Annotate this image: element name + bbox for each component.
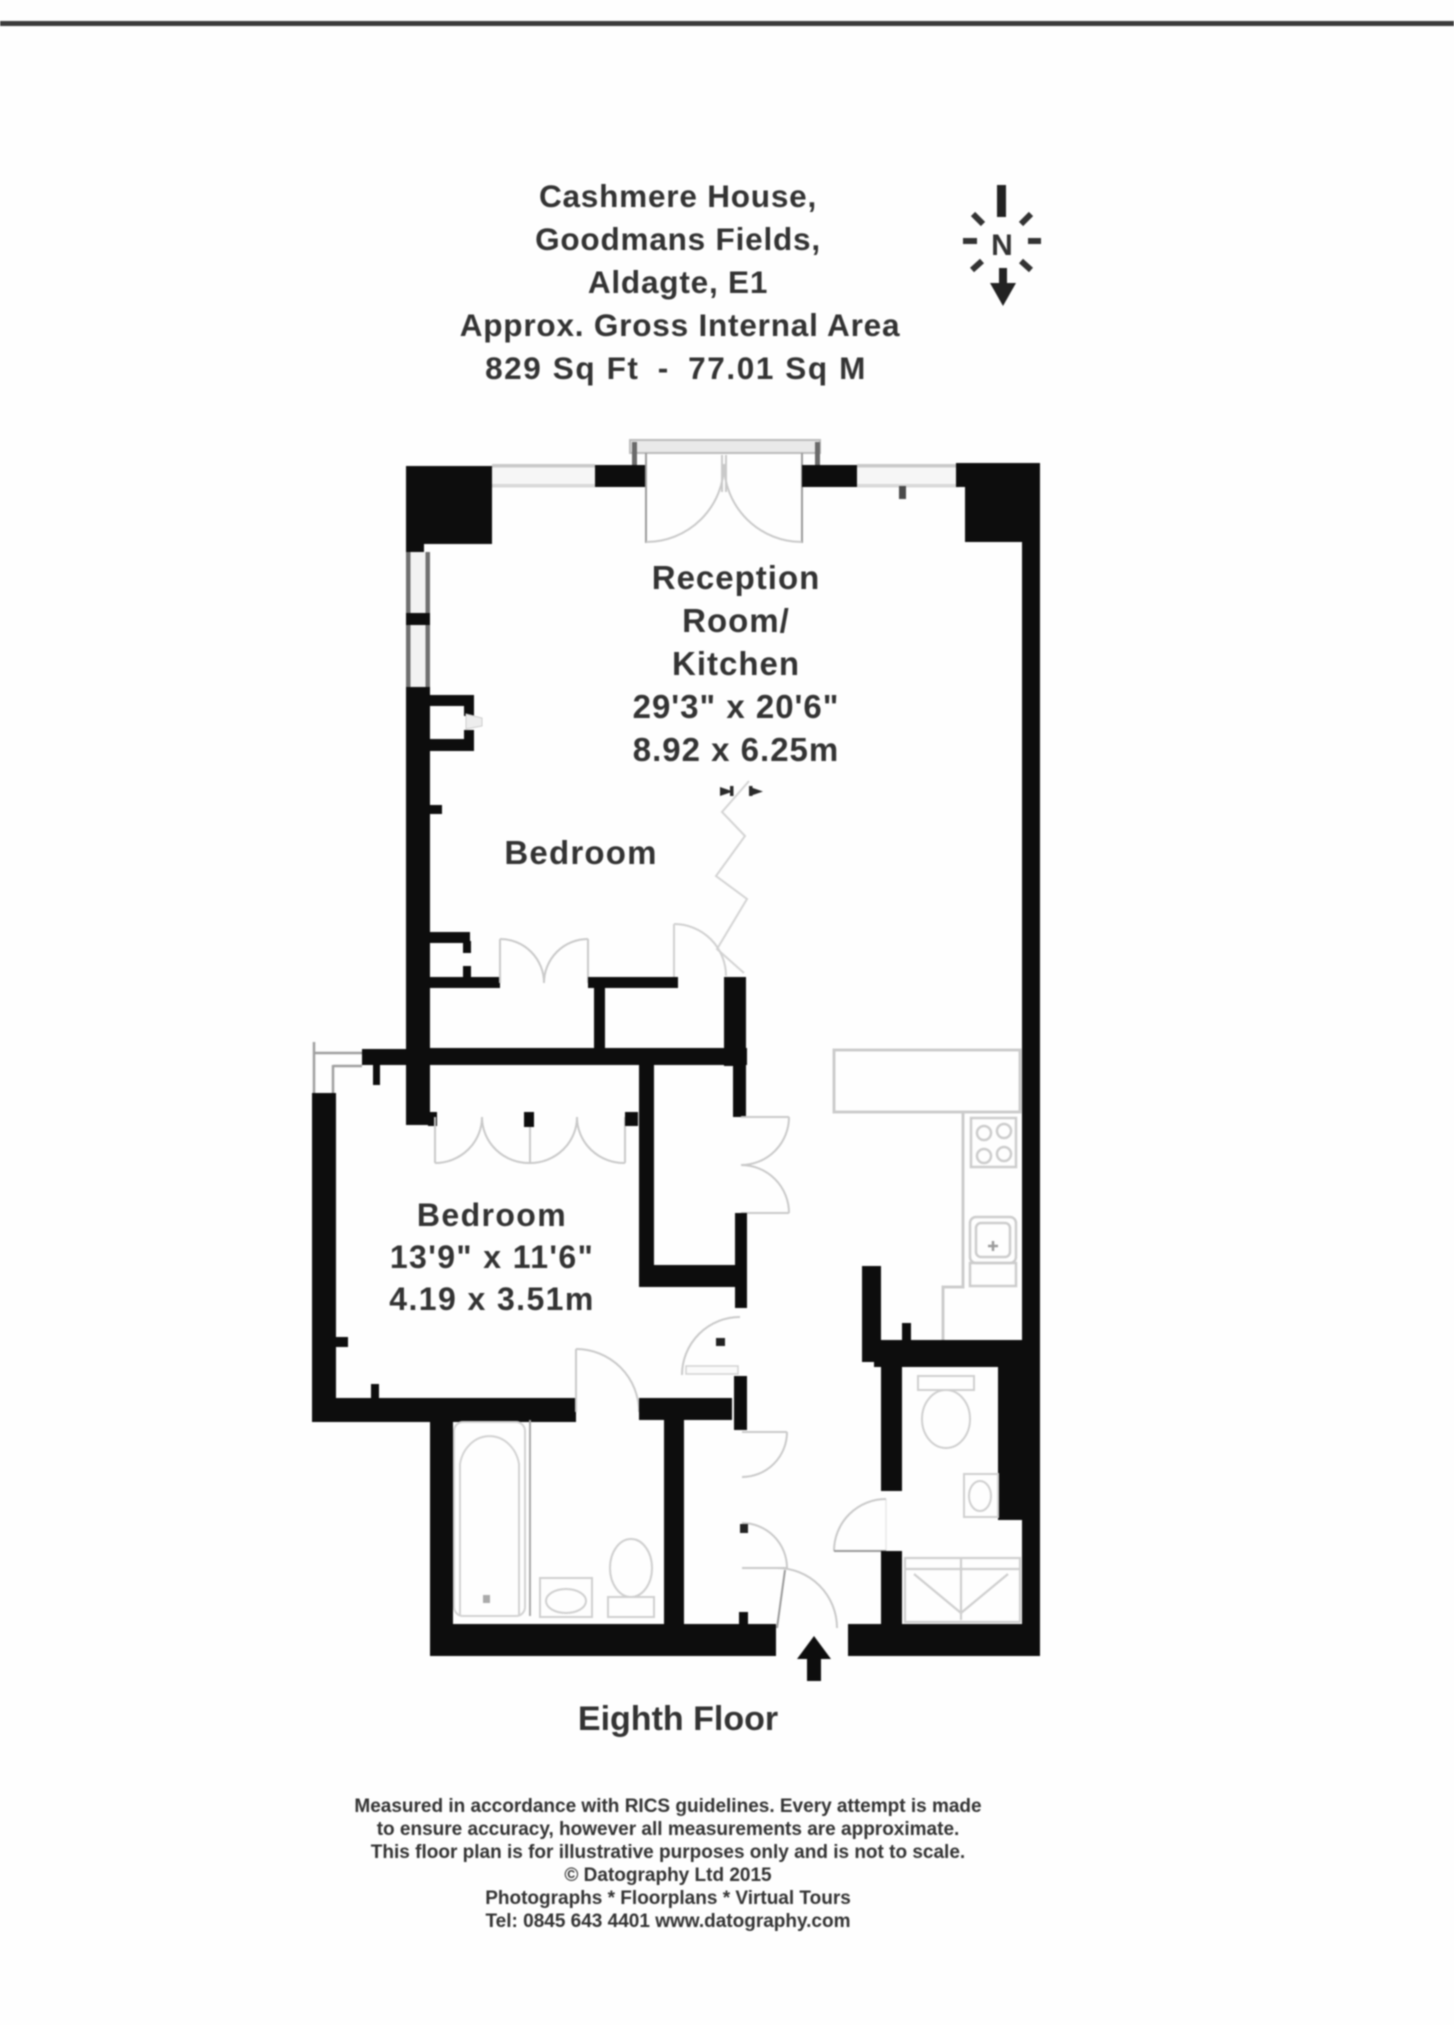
svg-text:Measured in accordance with RI: Measured in accordance with RICS guideli… (354, 1796, 981, 1817)
svg-text:29'3" x 20'6": 29'3" x 20'6" (633, 688, 840, 725)
svg-text:N: N (991, 229, 1013, 262)
svg-text:Reception: Reception (652, 559, 821, 596)
svg-text:This floor plan is for illustr: This floor plan is for illustrative purp… (371, 1842, 965, 1863)
svg-text:Aldagte, E1: Aldagte, E1 (588, 264, 768, 300)
svg-text:829 Sq Ft - 77.01 Sq M: 829 Sq Ft - 77.01 Sq M (485, 350, 867, 386)
svg-text:8.92 x 6.25m: 8.92 x 6.25m (633, 731, 840, 768)
svg-text:Goodmans Fields,: Goodmans Fields, (535, 221, 821, 257)
svg-text:© Datography Ltd 2015: © Datography Ltd 2015 (564, 1865, 772, 1886)
svg-text:Kitchen: Kitchen (672, 645, 800, 682)
svg-text:Cashmere House,: Cashmere House, (539, 178, 817, 214)
svg-text:Approx. Gross Internal Area: Approx. Gross Internal Area (460, 307, 901, 343)
svg-text:Bedroom: Bedroom (504, 834, 657, 871)
svg-text:13'9" x 11'6": 13'9" x 11'6" (390, 1239, 594, 1275)
svg-text:Eighth Floor: Eighth Floor (578, 1700, 778, 1738)
svg-text:Tel: 0845 643 4401 www.datogra: Tel: 0845 643 4401 www.datography.com (485, 1911, 850, 1932)
svg-text:Photographs * Floorplans * Vir: Photographs * Floorplans * Virtual Tours (485, 1888, 851, 1909)
svg-text:Bedroom: Bedroom (417, 1197, 567, 1233)
svg-text:to ensure accuracy, however al: to ensure accuracy, however all measurem… (377, 1819, 960, 1840)
svg-text:Room/: Room/ (682, 602, 790, 639)
svg-text:4.19 x 3.51m: 4.19 x 3.51m (389, 1281, 594, 1317)
